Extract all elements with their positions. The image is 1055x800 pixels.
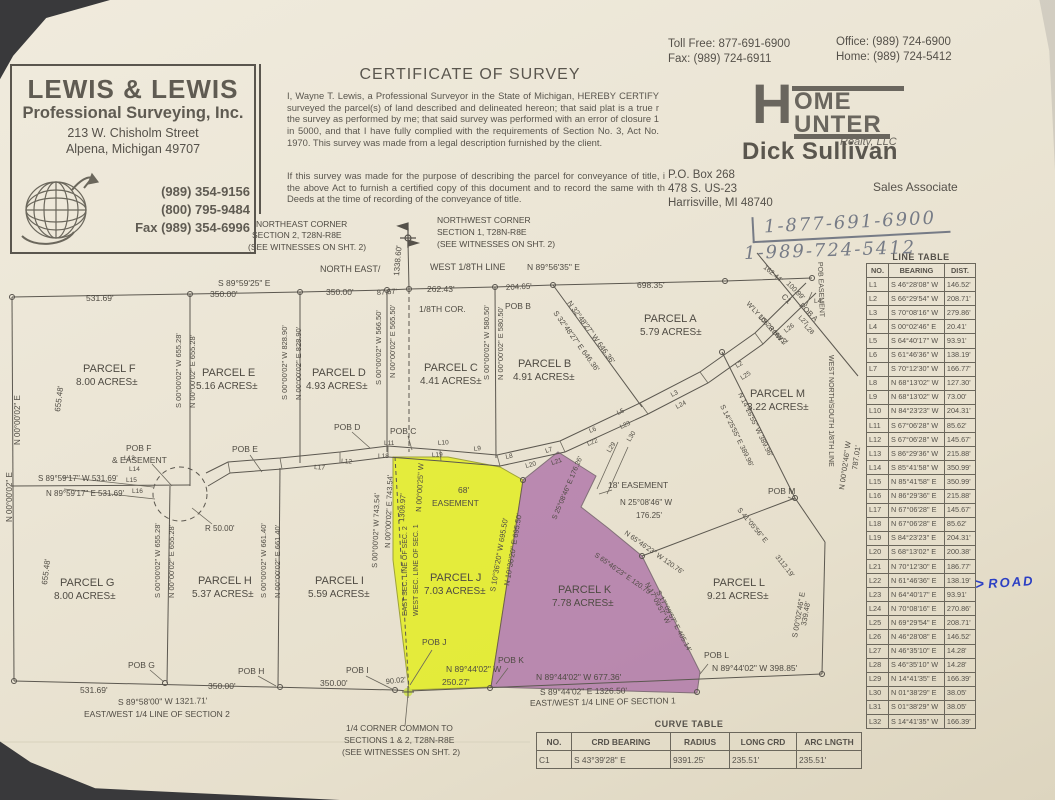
map-label-pobD: POB D	[334, 422, 360, 432]
map-label-lbot: N 89°44'02" W 398.85'	[712, 663, 798, 673]
map-label-pb2: 4.91 ACRES±	[513, 372, 575, 383]
map-label-vWsec: WEST SEC. LINE OF SEC. 1	[413, 524, 420, 616]
north-eighth-line	[12, 278, 812, 297]
line-no: L11	[867, 419, 889, 433]
surveyor-card: LEWIS & LEWIS Professional Surveying, In…	[10, 64, 256, 254]
line-distance: 350.99'	[944, 461, 975, 475]
line-table-row: L4 S 00°02'46" E 20.41'	[867, 320, 976, 334]
map-label-vHIw: S 00°00'02" W 661.40'	[259, 523, 268, 598]
surveyor-fax: Fax (989) 354-6996	[102, 220, 250, 235]
line-table-row: L21 N 70°12'30" E 186.77'	[867, 559, 976, 573]
line-table-row: L22 N 61°46'36" E 138.19'	[867, 574, 976, 588]
curve-no: C1	[537, 751, 572, 769]
line-table-row: L18 N 67°06'28" E 85.62'	[867, 517, 976, 531]
line-no: L25	[867, 616, 889, 630]
line-bearing: S 70°08'16" W	[889, 306, 945, 320]
curve-table: NO. CRD BEARING RADIUS LONG CRD ARC LNGT…	[536, 732, 862, 769]
line-table-block: LINE TABLE NO. BEARING DIST. L1 S 46°28'…	[866, 252, 976, 729]
map-label-vF: 655.48'	[53, 385, 65, 412]
line-table-row: L10 N 84°23'23" W 204.31'	[867, 404, 976, 418]
line-table-col-dist: DIST.	[944, 264, 975, 278]
line-no: L24	[867, 602, 889, 616]
map-label-pe2: 5.16 ACRES±	[196, 381, 258, 392]
road-note-text: ROAD	[988, 573, 1035, 591]
map-label-l23: L23	[619, 420, 632, 431]
line-table-row: L30 N 01°38'29" E 38.05'	[867, 686, 976, 700]
line-bearing: N 85°41'58" E	[889, 475, 945, 489]
curve-col-bearing: CRD BEARING	[572, 733, 671, 751]
cul-de-sac-circle	[153, 467, 207, 521]
map-label-e68b: EASEMENT	[432, 498, 479, 508]
line-bearing: N 67°06'28" E	[889, 517, 945, 531]
line-distance: 208.71'	[944, 292, 975, 306]
map-label-d20465: 204.65'	[506, 282, 533, 292]
map-label-c1lbl: C1	[780, 292, 794, 306]
line-no: L12	[867, 433, 889, 447]
line-bearing: S 66°29'54" W	[889, 292, 945, 306]
line-no: L17	[867, 503, 889, 517]
line-no: L4	[867, 320, 889, 334]
map-label-l28: L28	[803, 323, 816, 336]
line-bearing: S 67°06'28" W	[889, 419, 945, 433]
map-label-pe1: PARCEL E	[202, 367, 255, 379]
line-no: L8	[867, 376, 889, 390]
map-label-ph2: 5.37 ACRES±	[192, 589, 254, 600]
line-no: L3	[867, 306, 889, 320]
map-label-pg2: 8.00 ACRES±	[54, 591, 116, 602]
curve-table-row: C1 S 43°39'28" E 9391.25' 235.51' 235.51…	[537, 751, 862, 769]
line-distance: 145.67'	[944, 433, 975, 447]
corner-tie-line	[408, 242, 409, 289]
line-table-row: L5 S 64°40'17" W 93.91'	[867, 334, 976, 348]
line-no: L15	[867, 475, 889, 489]
map-label-r50: R 50.00'	[205, 524, 235, 533]
line-distance: 127.30'	[944, 376, 975, 390]
line-table-row: L20 S 68°13'02" E 200.38'	[867, 545, 976, 559]
certificate-paragraph-1: I, Wayne T. Lewis, a Professional Survey…	[287, 90, 659, 149]
surveyor-name: LEWIS & LEWIS	[12, 74, 254, 105]
home-hunter-logo: H OME UNTER Realty, LLC	[752, 80, 902, 138]
logo-h-glyph: H	[752, 76, 792, 132]
line-no: L1	[867, 278, 889, 292]
map-label-l7: L7	[544, 446, 553, 455]
map-label-ne3: (SEE WITNESSES ON SHT. 2)	[248, 242, 366, 252]
line-no: L32	[867, 715, 889, 729]
line-table-col-bearing: BEARING	[889, 264, 945, 278]
line-no: L2	[867, 292, 889, 306]
line-no: L31	[867, 700, 889, 714]
map-label-e68a: 68'	[458, 485, 469, 495]
surveyor-address2: Alpena, Michigan 49707	[12, 142, 254, 156]
line-table-row: L11 S 67°06'28" W 85.62'	[867, 419, 976, 433]
curve-long-chord: 235.51'	[730, 751, 797, 769]
map-label-northline2: WEST 1/8TH LINE	[430, 262, 505, 272]
realtor-addr1: P.O. Box 268	[668, 168, 735, 183]
map-label-cor18: 1/8TH COR.	[419, 304, 466, 314]
realtor-office: Office: (989) 724-6900	[836, 36, 951, 48]
map-label-l9: L9	[473, 445, 482, 453]
map-label-l18: L18	[378, 453, 389, 460]
map-label-l20: L20	[525, 460, 538, 470]
map-label-pj1: PARCEL J	[430, 572, 481, 584]
line-table-row: L9 N 68°13'02" W 73.00'	[867, 390, 976, 404]
surveyor-phone1: (989) 354-9156	[112, 184, 250, 199]
line-table-row: L14 S 85°41'58" W 350.99'	[867, 461, 976, 475]
line-distance: 279.86'	[944, 306, 975, 320]
map-label-s4105: S 41°05'56" E	[735, 506, 769, 544]
curve-col-arc: ARC LNGTH	[797, 733, 862, 751]
line-table-row: L29 N 14°41'35" E 166.39'	[867, 672, 976, 686]
map-label-l12: L12	[341, 458, 353, 466]
line-table-row: L16 N 86°29'36" E 215.88'	[867, 489, 976, 503]
line-distance: 215.88'	[944, 447, 975, 461]
line-distance: 166.39'	[944, 715, 975, 729]
line-bearing: S 46°35'10" W	[889, 658, 945, 672]
map-label-d3112: 3112.19'	[773, 554, 795, 579]
line-no: L7	[867, 362, 889, 376]
line-table-row: L15 N 85°41'58" E 350.99'	[867, 475, 976, 489]
map-label-jbot2: 250.27'	[442, 677, 470, 687]
map-label-vEDw: S 00°00'02" W 828.90'	[280, 325, 289, 400]
map-label-ne2: SECTION 2, T28N-R8E	[252, 230, 342, 240]
surveyor-phone2: (800) 795-9484	[112, 202, 250, 217]
map-label-d350a: 350.00'	[210, 289, 238, 299]
boundary-f-g	[12, 485, 190, 486]
map-label-pb1: PARCEL B	[518, 358, 571, 370]
map-label-l13: L13	[124, 455, 135, 462]
line-distance: 85.62'	[944, 419, 975, 433]
map-label-pobM: POB M	[768, 486, 795, 496]
curve-radius: 9391.25'	[671, 751, 730, 769]
map-label-pobE: POB E	[232, 444, 258, 454]
line-bearing: N 69°29'54" E	[889, 616, 945, 630]
line-distance: 14.28'	[944, 658, 975, 672]
map-label-d69835: 698.35'	[637, 280, 665, 290]
parcel-l-east	[822, 542, 825, 674]
road-arrow-icon: >	[974, 575, 984, 593]
line-table-title: LINE TABLE	[866, 252, 976, 262]
map-label-d16244: 162.44'	[762, 264, 784, 284]
line-no: L19	[867, 531, 889, 545]
line-bearing: N 84°23'23" W	[889, 404, 945, 418]
map-label-pi2: 5.59 ACRES±	[308, 589, 370, 600]
map-label-vHIe: N 00°00'02" E 661.40'	[273, 524, 282, 598]
line-bearing: S 85°41'58" W	[889, 461, 945, 475]
map-label-vFEe: N 00°00'02" E 655.28'	[188, 334, 197, 408]
line-no: L21	[867, 559, 889, 573]
map-label-d8757: 87.57'	[377, 287, 398, 297]
map-label-northline1: NORTH EAST/	[320, 264, 381, 274]
line-bearing: N 70°08'16" E	[889, 602, 945, 616]
line-table-row: L26 N 46°28'08" E 146.52'	[867, 630, 976, 644]
map-label-e18: 18' EASEMENT	[608, 480, 668, 490]
map-label-l2: L2	[734, 360, 744, 370]
map-label-pi1: PARCEL I	[315, 575, 364, 587]
map-label-kbot: N 89°44'02" W 677.36'	[536, 672, 622, 682]
map-label-d787: 787.01'	[850, 444, 862, 470]
map-label-pf2: 8.00 ACRES±	[76, 377, 138, 388]
line-bearing: N 61°46'36" E	[889, 574, 945, 588]
line-bearing: N 67°06'28" E	[889, 503, 945, 517]
map-label-pf1: PARCEL F	[83, 363, 136, 375]
map-label-pl2: 9.21 ACRES±	[707, 591, 769, 602]
map-label-pobI: POB I	[346, 665, 369, 675]
realtor-tollfree: Toll Free: 877-691-6900	[668, 38, 790, 50]
map-label-pobEas: POB EASEMENT	[816, 262, 825, 318]
line-bearing: N 68°13'02" W	[889, 376, 945, 390]
curve-bearing: S 43°39'28" E	[572, 751, 671, 769]
map-label-l17: L17	[314, 464, 326, 472]
map-label-l30: L30	[626, 430, 638, 443]
map-label-vGHw: S 00°00'02" W 655.28'	[153, 523, 162, 598]
map-label-qcor3: (SEE WITNESSES ON SHT. 2)	[342, 747, 460, 757]
line-bearing: N 86°29'36" E	[889, 489, 945, 503]
map-label-d26243: 262.43'	[427, 284, 455, 294]
map-label-pobJ: POB J	[422, 637, 447, 647]
map-label-ph1: PARCEL H	[198, 575, 252, 587]
line-no: L23	[867, 588, 889, 602]
realtor-addr2: 478 S. US-23	[668, 182, 737, 197]
line-table-row: L6 S 61°46'36" W 138.19'	[867, 348, 976, 362]
realtor-addr3: Harrisville, MI 48740	[668, 196, 773, 211]
map-label-qsec1b: EAST/WEST 1/4 LINE OF SECTION 1	[530, 695, 676, 708]
map-label-d350c: 350.00'	[208, 681, 236, 691]
line-distance: 93.91'	[944, 334, 975, 348]
map-label-vDCe: N 00°00'02" E 565.50'	[388, 304, 397, 378]
curve-table-header-row: NO. CRD BEARING RADIUS LONG CRD ARC LNGT…	[537, 733, 862, 751]
line-distance: 208.71'	[944, 616, 975, 630]
realtor-fax: Fax: (989) 724-6911	[668, 53, 771, 65]
line-table-header-row: NO. BEARING DIST.	[867, 264, 976, 278]
surveyor-tagline: Professional Surveying, Inc.	[12, 104, 254, 123]
map-label-nw3: (SEE WITNESSES ON SHT. 2)	[437, 239, 555, 249]
line-distance: 14.28'	[944, 644, 975, 658]
line-table-row: L12 S 67°06'28" W 145.67'	[867, 433, 976, 447]
map-label-vFEw: S 00°00'02" W 655.28'	[174, 333, 183, 408]
map-label-pobK: POB K	[498, 655, 524, 665]
map-label-n2508a: N 25°08'46" W	[620, 498, 672, 507]
line-distance: 38.05'	[944, 686, 975, 700]
line-distance: 166.39'	[944, 672, 975, 686]
line-table-row: L23 N 64°40'17" E 93.91'	[867, 588, 976, 602]
map-label-l11: L11	[384, 440, 395, 447]
map-label-pobL: POB L	[704, 650, 729, 660]
map-label-pd1: PARCEL D	[312, 367, 366, 379]
line-no: L13	[867, 447, 889, 461]
line-bearing: S 61°46'36" W	[889, 348, 945, 362]
line-distance: 200.38'	[944, 545, 975, 559]
line-table-row: L2 S 66°29'54" W 208.71'	[867, 292, 976, 306]
line-bearing: S 67°06'28" W	[889, 433, 945, 447]
map-label-jbot1: N 89°44'02" W	[446, 664, 501, 674]
map-label-vDCw: S 00°00'02" W 566.50'	[374, 310, 383, 385]
map-label-pobF1: POB F	[126, 443, 152, 453]
map-label-vCBe: N 00°00'02" E 580.50'	[496, 306, 505, 380]
line-bearing: S 68°13'02" E	[889, 545, 945, 559]
map-label-pj2: 7.03 ACRES±	[424, 586, 486, 597]
line-no: L26	[867, 630, 889, 644]
map-label-l24: L24	[675, 399, 688, 410]
line-distance: 146.52'	[944, 630, 975, 644]
line-bearing: S 14°41'35" W	[889, 715, 945, 729]
line-table-row: L19 S 84°23'23" E 204.31'	[867, 531, 976, 545]
agent-role: Sales Associate	[873, 180, 958, 194]
map-label-qsec2b: EAST/WEST 1/4 LINE OF SECTION 2	[84, 709, 230, 719]
line-bearing: N 14°41'35" E	[889, 672, 945, 686]
line-distance: 204.31'	[944, 404, 975, 418]
certificate-paragraph-2: If this survey was made for the purpose …	[287, 170, 665, 205]
map-label-brg8959e: N 89°59'17" E 531.69'	[46, 489, 125, 498]
line-bearing: N 46°28'08" E	[889, 630, 945, 644]
map-label-l8: L8	[505, 453, 514, 461]
line-table-row: L7 S 70°12'30" W 166.77'	[867, 362, 976, 376]
line-no: L30	[867, 686, 889, 700]
map-label-pobC: POB C	[390, 426, 416, 436]
map-label-l25: L25	[739, 370, 752, 382]
map-label-v1309: 1309.97'	[397, 493, 408, 523]
map-label-l19: L19	[432, 451, 444, 459]
map-label-d90: 90.02'	[385, 675, 407, 686]
line-distance: 270.86'	[944, 602, 975, 616]
map-label-pobG: POB G	[128, 660, 155, 670]
line-table-row: L17 N 67°06'28" E 145.67'	[867, 503, 976, 517]
line-distance: 350.99'	[944, 475, 975, 489]
line-distance: 73.00'	[944, 390, 975, 404]
scanned-survey-document: NORTHEAST CORNERSECTION 2, T28N-R8E(SEE …	[0, 0, 1055, 800]
line-no: L14	[867, 461, 889, 475]
line-bearing: S 00°02'46" E	[889, 320, 945, 334]
agent-name: Dick Sullivan	[742, 138, 898, 166]
map-label-nw2: SECTION 1, T28N-R8E	[437, 227, 527, 237]
line-no: L10	[867, 404, 889, 418]
map-label-vNE2: N 00°00'02" E	[5, 472, 14, 522]
line-bearing: N 64°40'17" E	[889, 588, 945, 602]
line-table-row: L8 N 68°13'02" W 127.30'	[867, 376, 976, 390]
map-label-qsec1a: S 89°44'02" E 1326.50'	[540, 685, 628, 697]
line-table-row: L28 S 46°35'10" W 14.28'	[867, 658, 976, 672]
map-label-d531a: 531.69'	[86, 293, 114, 303]
certificate-title: CERTIFICATE OF SURVEY	[300, 66, 640, 84]
line-table-row: L1 S 46°28'08" W 146.52'	[867, 278, 976, 292]
line-distance: 186.77'	[944, 559, 975, 573]
line-bearing: N 68°13'02" W	[889, 390, 945, 404]
map-label-pl1: PARCEL L	[713, 577, 765, 589]
line-table-row: L32 S 14°41'35" W 166.39'	[867, 715, 976, 729]
line-distance: 145.67'	[944, 503, 975, 517]
map-label-vCBw: S 00°00'02" W 580.50'	[482, 305, 491, 380]
globe-logo-icon	[14, 166, 106, 250]
map-label-dim1338: 1338.60'	[392, 245, 404, 277]
map-label-wns18: WEST NORTH/SOUTH 1/8TH LINE	[827, 355, 834, 467]
map-label-pg1: PARCEL G	[60, 577, 114, 589]
map-label-pobB: POB B	[505, 301, 531, 311]
curve-table-title: CURVE TABLE	[536, 719, 842, 729]
map-label-pa1: PARCEL A	[644, 313, 697, 325]
line-no: L6	[867, 348, 889, 362]
curve-arc-length: 235.51'	[797, 751, 862, 769]
map-label-pm2: 3.22 ACRES±	[747, 402, 809, 413]
line-distance: 204.31'	[944, 531, 975, 545]
map-label-pm1: PARCEL M	[750, 388, 805, 400]
map-label-vGHe: N 00°00'02" E 655.28'	[167, 524, 176, 598]
line-no: L9	[867, 390, 889, 404]
map-label-brg8956: N 89°56'35" E	[527, 262, 580, 272]
map-label-vIw: S 00°00'02" W 743.54'	[370, 492, 382, 568]
map-label-nw1: NORTHWEST CORNER	[437, 215, 531, 225]
line-table: NO. BEARING DIST. L1 S 46°28'08" W 146.5…	[866, 263, 976, 729]
map-label-pa2: 5.79 ACRES±	[640, 327, 702, 338]
map-label-d531b: 531.69'	[80, 685, 108, 695]
map-label-l26: L26	[783, 322, 796, 334]
line-bearing: S 84°23'23" E	[889, 531, 945, 545]
map-label-qcor2: SECTIONS 1 & 2, T28N-R8E	[344, 735, 455, 745]
line-bearing: N 70°12'30" E	[889, 559, 945, 573]
map-label-brg8959w: S 89°59'17" W 531.69'	[38, 474, 118, 483]
map-label-l6: L6	[588, 426, 598, 435]
map-label-ne1: NORTHEAST CORNER	[256, 219, 347, 229]
map-label-qsec2a: S 89°58'00" W 1321.71'	[118, 695, 208, 707]
curve-col-radius: RADIUS	[671, 733, 730, 751]
line-distance: 146.52'	[944, 278, 975, 292]
line-table-row: L3 S 70°08'16" W 279.86'	[867, 306, 976, 320]
line-no: L27	[867, 644, 889, 658]
line-bearing: S 01°38'29" W	[889, 700, 945, 714]
curve-col-no: NO.	[537, 733, 572, 751]
map-label-d350d: 350.00'	[320, 678, 348, 688]
line-no: L20	[867, 545, 889, 559]
map-label-n2508b: 176.25'	[636, 511, 662, 520]
line-distance: 138.19'	[944, 348, 975, 362]
line-bearing: N 01°38'29" E	[889, 686, 945, 700]
map-label-vNE1: N 00°00'02" E	[13, 395, 22, 445]
line-bearing: S 70°12'30" W	[889, 362, 945, 376]
map-label-pobF2: & EASEMENT	[112, 455, 167, 465]
line-distance: 85.62'	[944, 517, 975, 531]
line-no: L28	[867, 658, 889, 672]
line-table-row: L24 N 70°08'16" E 270.86'	[867, 602, 976, 616]
map-label-l22: L22	[586, 437, 599, 448]
line-table-row: L27 N 46°35'10" E 14.28'	[867, 644, 976, 658]
map-label-qcor1: 1/4 CORNER COMMON TO	[346, 723, 453, 733]
line-distance: 215.88'	[944, 489, 975, 503]
curve-col-longcrd: LONG CRD	[730, 733, 797, 751]
line-no: L16	[867, 489, 889, 503]
map-label-pc1: PARCEL C	[424, 362, 478, 374]
map-label-pc2: 4.41 ACRES±	[420, 376, 482, 387]
map-label-l14: L14	[129, 466, 140, 473]
line-distance: 93.91'	[944, 588, 975, 602]
line-no: L5	[867, 334, 889, 348]
line-distance: 20.41'	[944, 320, 975, 334]
map-label-vEDe: N 00°00'02" E 828.90'	[294, 326, 303, 400]
line-bearing: N 46°35'10" E	[889, 644, 945, 658]
line-table-col-no: NO.	[867, 264, 889, 278]
map-label-l15: L15	[126, 477, 137, 484]
map-label-pobH: POB H	[238, 666, 264, 676]
line-no: L29	[867, 672, 889, 686]
map-label-vEsec: EAST SEC. LINE OF SEC. 2	[402, 526, 409, 616]
map-label-l10: L10	[438, 439, 450, 447]
map-label-l3: L3	[670, 389, 680, 399]
map-label-vG: 655.48'	[40, 558, 52, 585]
map-label-brg8959: S 89°59'25" E	[218, 278, 271, 288]
line-distance: 138.19'	[944, 574, 975, 588]
map-label-d350b: 350.00'	[326, 287, 354, 297]
map-label-pk2: 7.78 ACRES±	[552, 598, 614, 609]
line-bearing: S 86°29'36" W	[889, 447, 945, 461]
map-label-pd2: 4.93 ACRES±	[306, 381, 368, 392]
line-no: L18	[867, 517, 889, 531]
